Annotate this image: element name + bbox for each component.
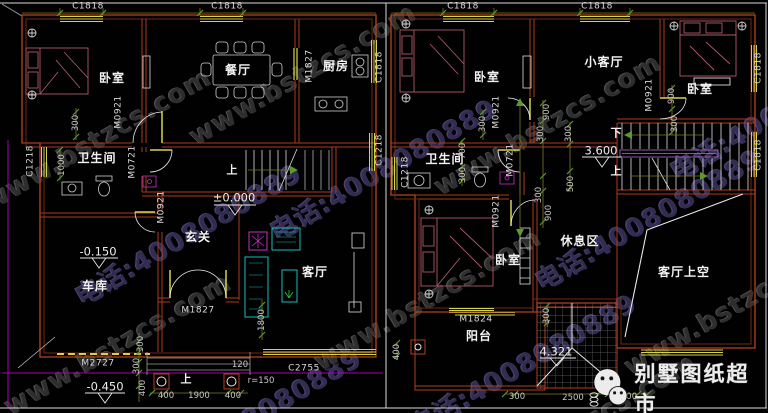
dim-label: 700 [459, 143, 468, 159]
room-label: 玄关 [185, 231, 211, 243]
dim-label: 120 [232, 361, 248, 370]
dim-label: 300 [565, 126, 574, 142]
door-label: M0721 [507, 143, 516, 176]
door-label: M1824 [459, 316, 492, 325]
door-label: M0921 [646, 78, 655, 111]
dim-label: 300 [72, 115, 81, 131]
window-label: C1818 [447, 3, 479, 12]
dim-label: 300 [543, 308, 552, 324]
door-label: M0921 [493, 95, 502, 128]
dim-label: 300 [671, 116, 680, 132]
dim-label: 400 [139, 380, 148, 396]
stair-direction-label: 下 [611, 128, 622, 139]
dim-label: 900 [543, 104, 552, 120]
dim-label: 400 [393, 344, 402, 360]
brand-logo-text: 别墅图纸超市 [635, 358, 768, 413]
door-label: M0921 [158, 190, 167, 223]
room-label: 卧室 [99, 72, 125, 84]
window-label: C1818 [72, 3, 104, 12]
door-label: M1827 [181, 307, 214, 316]
window-label: C2755 [288, 365, 320, 374]
cad-floorplan-screenshot: www.bstzcs.com电话:4008080889www.bstzcs.co… [0, 0, 768, 413]
dim-label: 2500 [562, 394, 584, 403]
dim-label: 300 [479, 116, 488, 132]
level-label: -0.150 [79, 246, 116, 258]
dim-label: 500 [567, 176, 576, 192]
room-label: 小客厅 [584, 56, 623, 68]
window-label: C1218 [376, 134, 385, 166]
dim-label: 1800 [258, 309, 267, 331]
dim-label: 400 [225, 392, 241, 401]
room-label: 车库 [82, 280, 108, 292]
room-label: 客厅上空 [658, 266, 710, 278]
dim-label: 1900 [188, 392, 210, 401]
level-label: -0.450 [86, 381, 123, 393]
brand-logo: 别墅图纸超市 [588, 358, 768, 413]
dim-label: 1000 [58, 154, 67, 176]
room-label: 厨房 [323, 60, 349, 72]
stair-direction-label: 上 [611, 166, 622, 177]
room-label: 卫生间 [77, 152, 116, 164]
room-label: 卧室 [687, 83, 713, 95]
room-label: 阳台 [466, 330, 492, 342]
level-label: ±0.000 [213, 192, 256, 204]
dim-label: 300 [459, 167, 468, 183]
room-label: 休息区 [560, 235, 599, 247]
dim-label: 900 [668, 88, 677, 104]
stair-direction-label: 上 [181, 374, 192, 385]
window-label: C1218 [27, 145, 36, 177]
room-label: 卧室 [474, 71, 500, 83]
dim-label: 300 [137, 336, 146, 352]
level-label: 3.600 [585, 145, 618, 157]
window-label: C1818 [581, 3, 613, 12]
window-label: C1818 [755, 52, 764, 84]
door-label: M0921 [493, 194, 502, 227]
dim-label: 300 [537, 126, 546, 142]
room-label: 客厅 [302, 266, 328, 278]
window-label: C1818 [755, 139, 764, 171]
door-label: M1827 [306, 49, 315, 82]
dim-label: 300 [133, 358, 142, 374]
dim-label: 300 [509, 393, 525, 402]
window-label: C1218 [402, 156, 411, 188]
dim-label: 400 [158, 392, 174, 401]
labels-layer: C1818C1818C1818C1818卧室餐厅厨房M1827M0921300C… [0, 0, 768, 413]
dim-label: r=150 [248, 377, 275, 386]
room-label: 餐厅 [225, 64, 251, 76]
door-label: M2727 [81, 360, 114, 369]
window-label: C1818 [211, 3, 243, 12]
room-label: 卧室 [495, 254, 521, 266]
dim-label: 900 [545, 205, 554, 221]
door-label: M0721 [129, 145, 138, 178]
wechat-icon [588, 364, 631, 412]
level-label: 4.321 [540, 346, 573, 358]
stair-direction-label: 上 [227, 165, 238, 176]
window-label: C1818 [376, 51, 385, 83]
door-label: M0921 [115, 95, 124, 128]
dim-label: 300 [535, 187, 544, 203]
